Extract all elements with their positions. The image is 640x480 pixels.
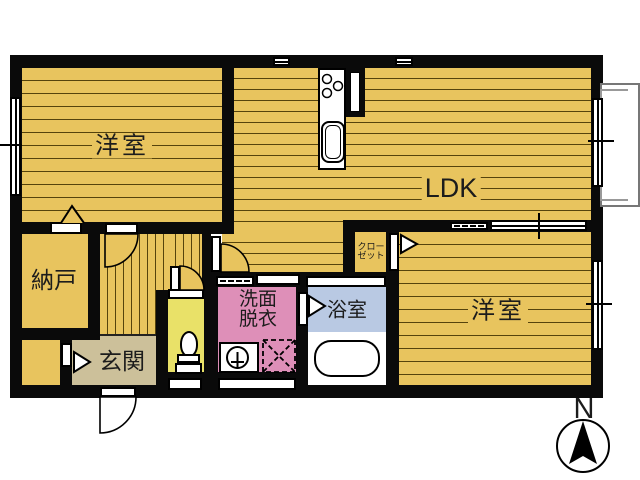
bathtub-icon (314, 340, 380, 377)
window-bedroom2-right (592, 260, 603, 350)
wall-bottom (10, 385, 603, 398)
vent-below-washroom (218, 378, 296, 390)
wall-hall-corridor-stub (202, 232, 211, 274)
window-bedroom1-left (10, 97, 21, 196)
kitchen-sink-inner (325, 125, 341, 159)
wall-top (10, 55, 603, 68)
bedroom2-label: 洋室 (468, 298, 528, 323)
closet-label: クロー ゼット (357, 243, 384, 262)
wall-toilet-left (156, 290, 168, 385)
window-ldk-balcony (592, 98, 603, 187)
wall-bedroom1-ldk (222, 68, 234, 234)
floor-plan: 洋室 LDK 納戸 玄関 洗面 脱衣 浴室 クロー ゼット 洋室 N (0, 0, 640, 480)
compass-needle (569, 421, 597, 464)
tick-window-bedroom2 (586, 303, 612, 305)
tick-window-balcony (588, 140, 614, 142)
opening-washroom (256, 274, 300, 285)
entrance-label: 玄関 (99, 349, 145, 373)
door-leaf-corridor (211, 236, 221, 272)
balcony-inner (600, 89, 628, 201)
door-leaf-closet (389, 233, 399, 271)
vent-below-toilet (168, 378, 202, 390)
slider-pocket-ldk-bedroom2 (450, 222, 488, 230)
door-leaf-toilet (170, 266, 180, 291)
wall-storage-right (88, 222, 100, 340)
door-leaf-bedroom1 (105, 223, 138, 234)
door-leaf-storage (50, 222, 82, 234)
compass-icon (557, 420, 609, 472)
vent-top-ldk (395, 57, 413, 66)
toilet-tank (175, 363, 202, 374)
storage-label: 納戸 (31, 268, 77, 292)
ldk-label: LDK (422, 174, 481, 202)
tick-window-left (0, 144, 22, 146)
shoe-closet-floor (22, 338, 60, 385)
vent-top-kitchen (273, 57, 290, 66)
wall-toilet-right (204, 285, 218, 385)
kitchen-fridge-slot (350, 72, 360, 112)
bathroom-label: 浴室 (327, 301, 367, 322)
tick-slider-ldk (538, 213, 540, 239)
opening-bathroom-top (306, 276, 386, 287)
ldk-corridor-floor (222, 232, 343, 274)
washbasin-icon (226, 346, 249, 369)
door-leaf-bathroom (298, 292, 308, 326)
ldk-floor (234, 68, 591, 232)
bedroom1-label: 洋室 (92, 133, 152, 158)
toilet-seat (177, 354, 200, 363)
washroom-label: 洗面 脱衣 (239, 290, 277, 330)
door-leaf-entrance (100, 387, 136, 397)
door-leaf-shoecloset (61, 343, 72, 367)
door-arc-entrance (100, 397, 136, 433)
compass-label: N (574, 394, 595, 424)
slider-pocket-washroom (216, 276, 254, 286)
